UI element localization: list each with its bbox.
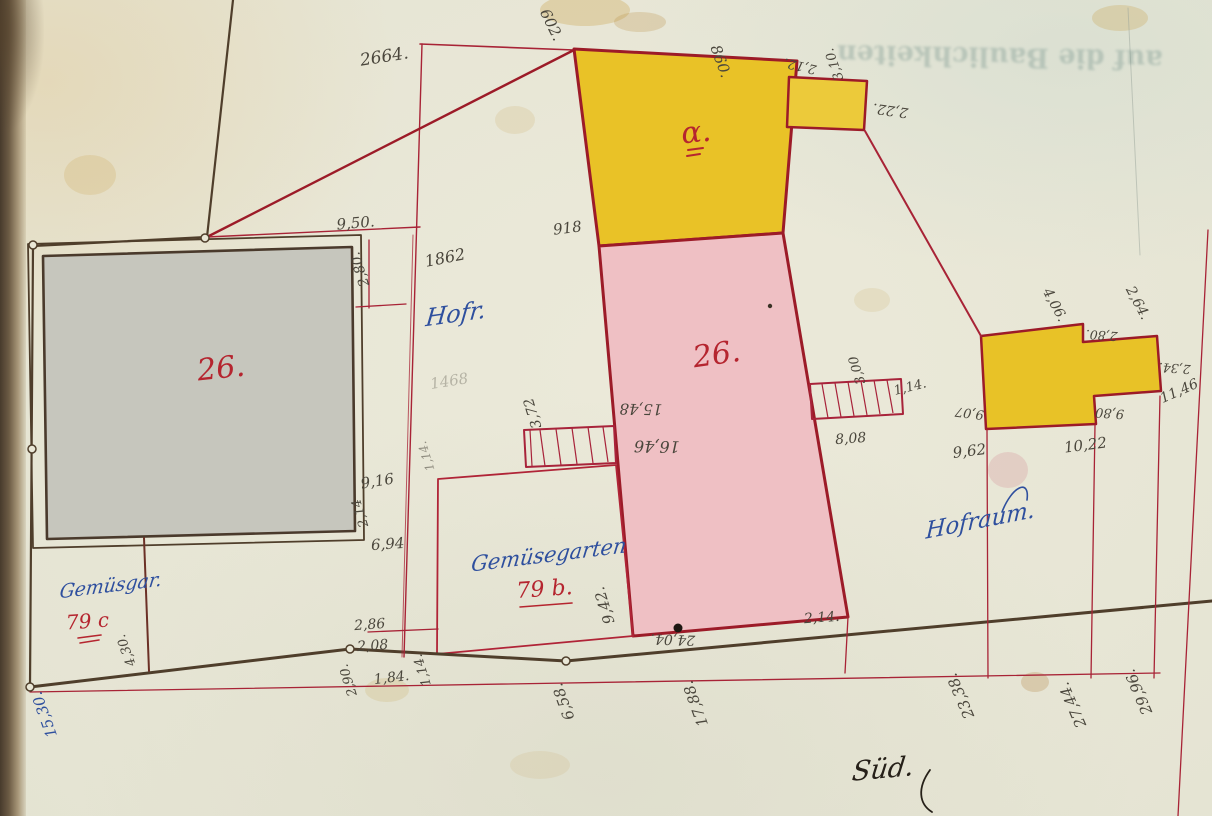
red-top-horizontal bbox=[420, 44, 574, 50]
red-page-edge-right bbox=[1178, 230, 1208, 816]
red-vert-right-1 bbox=[987, 430, 988, 678]
label-hofraum: Hofraum. bbox=[924, 495, 1035, 545]
measure-1022: 10,22 bbox=[1063, 433, 1108, 456]
building-alpha-annex-yellow bbox=[787, 77, 867, 130]
label-sued: Süd. bbox=[850, 751, 915, 787]
measure-942: 9,42. bbox=[590, 585, 618, 627]
measure-950: 9,50. bbox=[336, 212, 376, 233]
stair-hatch-line bbox=[861, 381, 867, 415]
measure-2664: 2664. bbox=[358, 43, 410, 71]
measure-280-notch-top: 2,80. bbox=[1085, 327, 1119, 344]
building-right-yellow-cross bbox=[981, 324, 1161, 429]
red-vert-pink-corner bbox=[845, 617, 848, 673]
ink-blot bbox=[768, 304, 772, 308]
stairs-left-inner-edge bbox=[530, 430, 532, 466]
measure-1146: 11,46 bbox=[1158, 376, 1201, 407]
measure-222: 2,22. bbox=[872, 100, 910, 121]
stair-hatch-line bbox=[540, 430, 545, 466]
paper-stain bbox=[495, 106, 535, 134]
79c-underline-2 bbox=[80, 640, 99, 643]
label-79c: 79 c bbox=[65, 608, 110, 635]
measure-907: 9,07 bbox=[954, 403, 985, 422]
bleed-through-text: auf die Baulichkeiten bbox=[836, 38, 1163, 75]
stair-hatch-line bbox=[556, 429, 561, 465]
measure-980-notch-bottom: 9,80 bbox=[1095, 404, 1125, 421]
paper-stain bbox=[1092, 5, 1148, 31]
cadastral-map-svg: auf die Baulichkeiten2664.602.860.2,12.3… bbox=[0, 0, 1212, 816]
measure-114-mid-faded: 1,14. bbox=[415, 440, 437, 473]
measure-290: 2,90. bbox=[337, 662, 361, 699]
red-diagonal-boundary bbox=[207, 50, 574, 237]
79b-underline bbox=[520, 603, 572, 607]
paper-stain bbox=[510, 751, 570, 779]
measure-658: 6,58. bbox=[548, 681, 578, 723]
parcels-and-buildings bbox=[28, 49, 1161, 654]
measure-2404: 24,04. bbox=[650, 630, 696, 648]
measure-962: 9,62 bbox=[952, 440, 987, 462]
measure-1548: 15,48 bbox=[619, 400, 662, 419]
stair-hatch-line bbox=[588, 427, 593, 463]
label-26-pink: 26. bbox=[690, 334, 743, 375]
measure-916: 9,16 bbox=[359, 469, 395, 492]
measure-214-right: 2,14. bbox=[802, 609, 840, 628]
paper-stain bbox=[64, 155, 116, 195]
stair-hatch-line bbox=[822, 384, 828, 418]
measure-1530-blue: 15,30. bbox=[28, 689, 61, 740]
measure-286: 2,86 bbox=[353, 616, 386, 634]
measure-1788: 17,88. bbox=[679, 678, 712, 729]
measure-1646: 16,46 bbox=[634, 437, 680, 457]
red-bottom-horizontal bbox=[30, 673, 1160, 692]
paper-stain bbox=[854, 288, 890, 312]
paper-stain bbox=[614, 12, 666, 32]
measure-264: 2,64. bbox=[1122, 283, 1153, 323]
measure-2338: 23,38. bbox=[943, 670, 979, 722]
sued-flourish bbox=[921, 770, 932, 812]
red-vertical-hof-left-2 bbox=[402, 235, 413, 657]
measure-234: 2,34. bbox=[1158, 360, 1192, 377]
survey-point-marker bbox=[201, 234, 209, 242]
stairs-left bbox=[524, 426, 616, 467]
measure-1468-faded: 1468 bbox=[429, 369, 470, 393]
survey-point-marker bbox=[562, 657, 570, 665]
paper-stain bbox=[988, 452, 1028, 488]
building-26-gray bbox=[43, 247, 355, 539]
measure-2996: 29,96. bbox=[1121, 666, 1157, 718]
survey-point-marker bbox=[29, 241, 37, 249]
measure-918: 918 bbox=[552, 217, 583, 238]
stair-hatch-line bbox=[835, 383, 841, 417]
red-vert-right-2 bbox=[1091, 425, 1095, 678]
stair-hatch-line bbox=[603, 427, 608, 462]
red-vert-right-3 bbox=[1154, 396, 1160, 678]
label-gemuesgar: Gemüsgar. bbox=[58, 568, 163, 604]
red-horiz-connector bbox=[356, 304, 406, 307]
measure-406: 4,06. bbox=[1039, 285, 1070, 325]
measure-2744: 27,44. bbox=[1055, 679, 1091, 731]
label-79b: 79 b. bbox=[516, 575, 574, 604]
label-gemuesegarten: Gemüsegarten bbox=[470, 533, 628, 577]
measure-208: 2,08 bbox=[356, 637, 389, 655]
stair-hatch-line bbox=[572, 428, 577, 464]
stair-hatch-line bbox=[874, 380, 880, 414]
label-alpha: α. bbox=[679, 114, 712, 152]
measure-1862: 1862 bbox=[423, 244, 467, 270]
79c-underline-1 bbox=[78, 635, 101, 638]
divider-79c bbox=[144, 538, 149, 671]
stair-hatch-line bbox=[848, 382, 854, 416]
survey-point-marker bbox=[346, 645, 354, 653]
survey-point-marker bbox=[26, 683, 34, 691]
measure-808: 8,08 bbox=[835, 430, 867, 448]
label-hofr: Hofr. bbox=[423, 295, 487, 333]
measure-372: 3,72 bbox=[521, 396, 545, 431]
measure-430: 4,30. bbox=[114, 632, 140, 669]
building-26-pink bbox=[599, 233, 848, 636]
measure-114-bottom: 1,14. bbox=[411, 652, 435, 688]
measure-694: 6,94 bbox=[370, 534, 405, 554]
label-26-gray: 26. bbox=[194, 349, 246, 389]
survey-point-marker bbox=[28, 445, 36, 453]
